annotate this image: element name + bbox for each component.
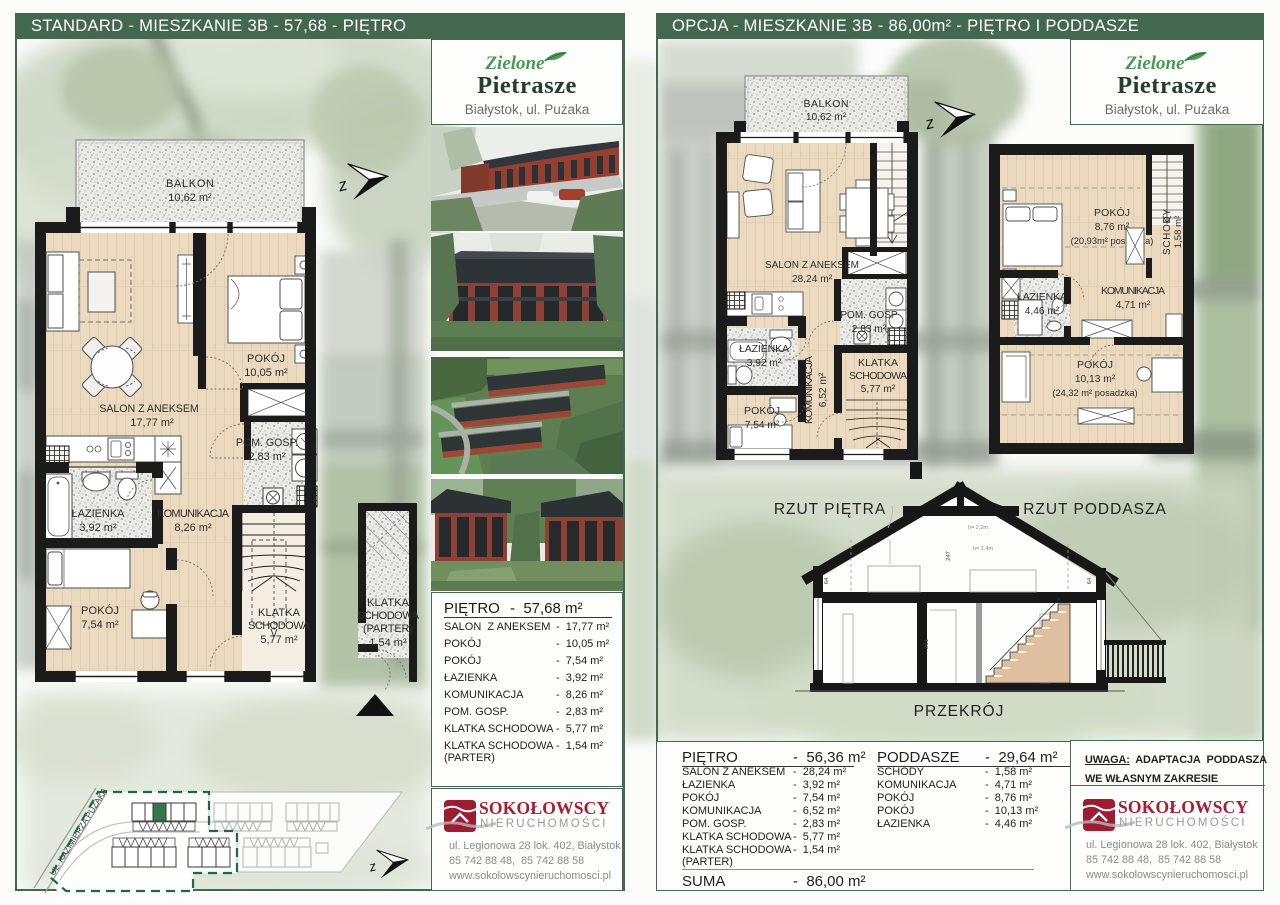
svg-text:28,24 m²: 28,24 m²	[792, 274, 833, 285]
svg-text:(PARTER): (PARTER)	[363, 623, 413, 635]
svg-text:SCHODOWA: SCHODOWA	[357, 610, 420, 622]
svg-text:POKÓJ: POKÓJ	[744, 404, 780, 417]
svg-text:POKÓJ: POKÓJ	[1077, 358, 1113, 371]
svg-text:1,54 m²: 1,54 m²	[369, 637, 407, 649]
svg-text:5,77 m²: 5,77 m²	[861, 384, 896, 395]
svg-text:PRZEKRÓJ: PRZEKRÓJ	[914, 703, 1005, 720]
svg-text:RZUT PODDASZA: RZUT PODDASZA	[1023, 501, 1167, 518]
svg-text:KLATKA: KLATKA	[258, 607, 301, 619]
svg-text:5,77 m²: 5,77 m²	[260, 634, 298, 646]
svg-text:3,92 m²: 3,92 m²	[79, 522, 117, 534]
svg-text:KLATKA: KLATKA	[367, 597, 410, 609]
svg-text:POKÓJ: POKÓJ	[81, 604, 119, 617]
svg-text:2,83 m²: 2,83 m²	[852, 324, 887, 335]
svg-text:64: 64	[1087, 577, 1093, 584]
svg-text:4,71 m²: 4,71 m²	[1116, 300, 1151, 311]
svg-text:261: 261	[924, 639, 930, 649]
svg-text:KOMUNIKACJA: KOMUNIKACJA	[157, 508, 230, 520]
svg-text:SCHODOWA: SCHODOWA	[849, 370, 907, 382]
svg-text:1,58 m²: 1,58 m²	[1173, 215, 1184, 248]
svg-text:10,62 m²: 10,62 m²	[168, 192, 212, 204]
svg-text:z: z	[922, 113, 936, 134]
svg-text:POKÓJ: POKÓJ	[247, 352, 285, 365]
svg-text:ŁAZIENKA: ŁAZIENKA	[72, 508, 126, 520]
svg-text:3,92 m²: 3,92 m²	[747, 358, 782, 369]
svg-text:POKÓJ: POKÓJ	[1094, 206, 1130, 219]
svg-text:z: z	[367, 858, 378, 874]
svg-text:10,13 m²: 10,13 m²	[1075, 374, 1116, 385]
svg-text:7,54 m²: 7,54 m²	[745, 420, 780, 431]
svg-text:10,62 m²: 10,62 m²	[806, 112, 847, 123]
svg-text:64: 64	[824, 577, 830, 584]
svg-text:KLATKA: KLATKA	[858, 357, 898, 369]
svg-text:2,83 m²: 2,83 m²	[248, 451, 286, 463]
svg-text:z: z	[335, 175, 349, 196]
svg-text:ŁAZIENKA: ŁAZIENKA	[1017, 291, 1067, 303]
svg-text:KOMUNIKACJA: KOMUNIKACJA	[803, 356, 815, 424]
svg-text:17,77 m²: 17,77 m²	[130, 417, 174, 429]
svg-text:10,05 m²: 10,05 m²	[244, 367, 288, 379]
svg-text:(24,32 m² posadzka): (24,32 m² posadzka)	[1052, 388, 1137, 398]
svg-text:POM. GOSP.: POM. GOSP.	[236, 437, 298, 449]
svg-text:SCHODY: SCHODY	[1162, 209, 1173, 255]
svg-text:8,26 m²: 8,26 m²	[174, 522, 212, 534]
svg-text:SCHODOWA: SCHODOWA	[248, 620, 311, 632]
svg-text:BALKON: BALKON	[804, 98, 849, 110]
svg-text:8,76 m²: 8,76 m²	[1095, 222, 1130, 233]
svg-text:POM. GOSP: POM. GOSP	[840, 310, 898, 321]
svg-text:SALON Z ANEKSEM: SALON Z ANEKSEM	[99, 403, 199, 415]
svg-text:247: 247	[946, 551, 952, 561]
svg-text:SALON Z ANEKSEM: SALON Z ANEKSEM	[765, 260, 859, 271]
svg-text:h= 2,2m: h= 2,2m	[968, 525, 988, 531]
svg-text:7,54 m²: 7,54 m²	[81, 619, 119, 631]
svg-text:KOMUNIKACJA: KOMUNIKACJA	[1101, 285, 1165, 297]
svg-text:6,52 m²: 6,52 m²	[818, 372, 829, 407]
svg-text:ŁAZIENKA: ŁAZIENKA	[739, 343, 789, 355]
svg-text:RZUT PIĘTRA: RZUT PIĘTRA	[774, 501, 886, 518]
svg-text:h= 1,4m: h= 1,4m	[973, 546, 993, 552]
svg-text:BALKON: BALKON	[166, 178, 214, 190]
svg-text:4,46 m²: 4,46 m²	[1025, 306, 1060, 317]
